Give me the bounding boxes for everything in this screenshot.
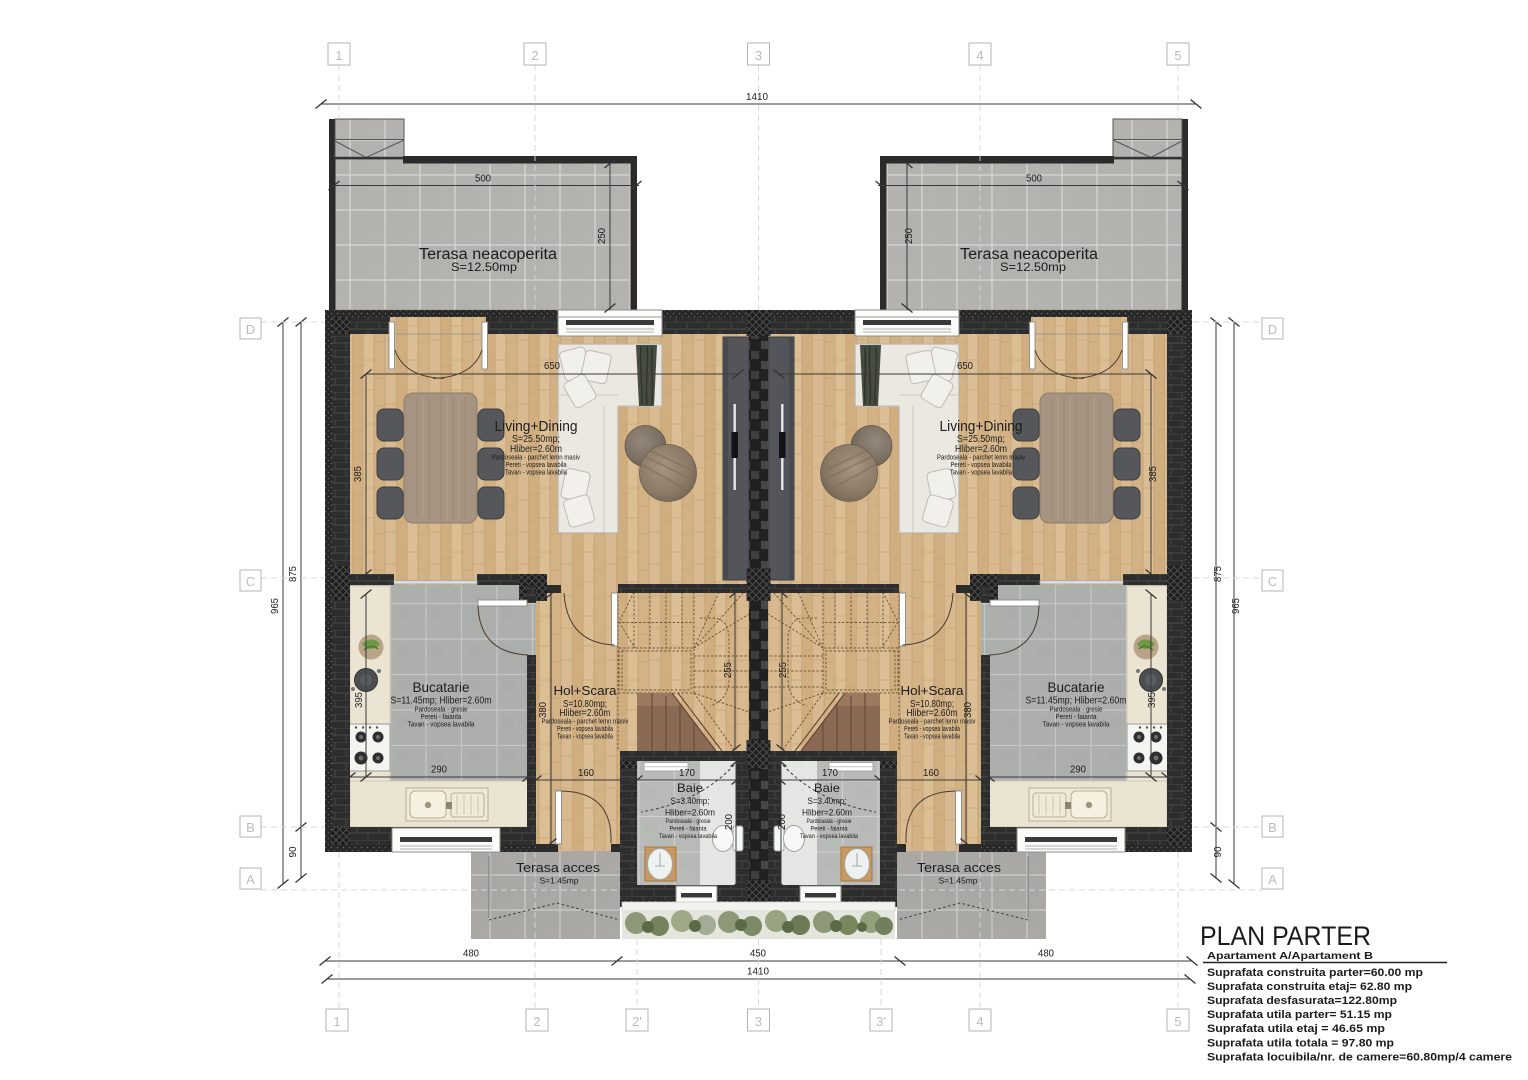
svg-text:Pardoseala - gresie: Pardoseala - gresie [415, 707, 468, 714]
svg-text:C: C [1268, 574, 1277, 589]
svg-text:S=1.45mp: S=1.45mp [540, 876, 579, 886]
svg-text:Apartament A/Apartament B: Apartament A/Apartament B [1207, 950, 1373, 962]
svg-text:3': 3' [876, 1014, 886, 1029]
svg-text:Pardoseala - parchet lemn masi: Pardoseala - parchet lemn masiv [889, 719, 976, 726]
svg-text:2': 2' [632, 1014, 642, 1029]
svg-text:395: 395 [1146, 692, 1158, 708]
svg-text:Suprafata desfasurata=122.80mp: Suprafata desfasurata=122.80mp [1207, 995, 1397, 1007]
svg-text:Suprafata utila totala = 97.80: Suprafata utila totala = 97.80 mp [1207, 1038, 1394, 1050]
svg-text:875: 875 [1212, 566, 1224, 582]
svg-text:4: 4 [976, 1014, 983, 1029]
svg-text:Suprafata utila parter= 51.15: Suprafata utila parter= 51.15 mp [1207, 1009, 1392, 1021]
svg-text:395: 395 [353, 692, 365, 708]
svg-text:Baie: Baie [814, 781, 840, 795]
svg-text:Suprafata locuibila/nr. de cam: Suprafata locuibila/nr. de camere=60.80m… [1207, 1052, 1512, 1064]
svg-text:Pardoseala - gresie: Pardoseala - gresie [807, 818, 852, 825]
svg-text:650: 650 [957, 360, 973, 372]
svg-text:290: 290 [431, 764, 447, 776]
svg-text:160: 160 [578, 767, 594, 779]
svg-text:Suprafata utila etaj = 46.65: Suprafata utila etaj = 46.65 mp [1207, 1023, 1385, 1035]
svg-text:385: 385 [352, 466, 364, 482]
svg-text:S=1.45mp: S=1.45mp [939, 876, 978, 886]
svg-text:650: 650 [544, 360, 560, 372]
svg-text:Pardoseala - parchet lemn masi: Pardoseala - parchet lemn masiv [542, 719, 629, 726]
svg-text:Tavan - vopsea lavabila: Tavan - vopsea lavabila [950, 470, 1012, 477]
svg-text:D: D [246, 322, 255, 337]
svg-text:S=3.40mp;: S=3.40mp; [808, 796, 847, 807]
svg-text:Suprafata construita parter=60: Suprafata construita parter=60.00 mp [1207, 967, 1423, 979]
svg-text:S=3.40mp;: S=3.40mp; [671, 796, 710, 807]
svg-text:S=12.50mp: S=12.50mp [1000, 260, 1066, 274]
svg-text:Pereti - faianta: Pereti - faianta [1056, 714, 1097, 721]
svg-text:3: 3 [755, 48, 762, 63]
svg-text:A: A [246, 872, 255, 887]
svg-text:C: C [246, 574, 255, 589]
svg-text:Terasa acces: Terasa acces [917, 861, 1001, 875]
svg-text:4: 4 [976, 48, 983, 63]
svg-text:Pereti - vopsea lavabila: Pereti - vopsea lavabila [557, 726, 613, 733]
svg-text:A: A [1268, 872, 1277, 887]
svg-text:1410: 1410 [746, 91, 768, 103]
svg-text:D: D [1268, 322, 1277, 337]
svg-text:290: 290 [1070, 764, 1086, 776]
svg-text:170: 170 [679, 767, 695, 779]
svg-text:Tavan - vopsea lavabila: Tavan - vopsea lavabila [800, 833, 858, 840]
svg-text:160: 160 [923, 767, 939, 779]
svg-text:965: 965 [269, 598, 281, 614]
svg-text:Hliber=2.60m: Hliber=2.60m [955, 444, 1007, 455]
svg-text:Pardoseala - parchet lemn masi: Pardoseala - parchet lemn masiv [937, 455, 1025, 462]
svg-text:1410: 1410 [747, 966, 769, 978]
svg-text:2: 2 [531, 48, 538, 63]
svg-text:255: 255 [777, 662, 789, 678]
svg-text:Living+Dining: Living+Dining [495, 418, 578, 435]
svg-text:380: 380 [962, 702, 974, 718]
svg-text:450: 450 [750, 948, 766, 960]
svg-text:480: 480 [463, 948, 479, 960]
svg-text:Living+Dining: Living+Dining [940, 418, 1023, 435]
svg-text:875: 875 [287, 566, 299, 582]
svg-text:3: 3 [755, 1014, 762, 1029]
svg-text:500: 500 [1026, 173, 1042, 185]
svg-text:Tavan - vopsea lavabila: Tavan - vopsea lavabila [408, 722, 475, 729]
svg-text:Pereti - vopsea lavabila: Pereti - vopsea lavabila [904, 726, 960, 733]
svg-text:Hliber=2.60m: Hliber=2.60m [907, 708, 958, 719]
svg-text:Pereti - faianta: Pereti - faianta [421, 714, 462, 721]
svg-text:Pereti - faianta: Pereti - faianta [811, 826, 848, 833]
svg-text:2: 2 [533, 1014, 540, 1029]
svg-text:250: 250 [596, 228, 608, 244]
svg-text:1: 1 [335, 48, 342, 63]
svg-text:965: 965 [1230, 598, 1242, 614]
svg-text:90: 90 [287, 846, 299, 857]
svg-text:5: 5 [1174, 1014, 1181, 1029]
svg-text:Pereti - vopsea lavabila: Pereti - vopsea lavabila [506, 462, 567, 469]
svg-text:90: 90 [1212, 846, 1224, 857]
svg-text:385: 385 [1147, 466, 1159, 482]
svg-text:S=11.45mp; Hliber=2.60m: S=11.45mp; Hliber=2.60m [391, 696, 492, 707]
svg-text:Pardoseala - gresie: Pardoseala - gresie [666, 818, 711, 825]
svg-text:PLAN PARTER: PLAN PARTER [1200, 921, 1371, 951]
svg-text:Tavan - vopsea lavabila: Tavan - vopsea lavabila [1043, 722, 1110, 729]
svg-text:Hliber=2.60m: Hliber=2.60m [560, 708, 611, 719]
svg-text:200: 200 [776, 814, 788, 830]
svg-text:Bucatarie: Bucatarie [1048, 679, 1105, 695]
svg-text:1: 1 [333, 1014, 340, 1029]
svg-text:Pardoseala - parchet lemn masi: Pardoseala - parchet lemn masiv [492, 455, 580, 462]
svg-text:Hliber=2.60m: Hliber=2.60m [665, 808, 715, 819]
svg-text:Hliber=2.60m: Hliber=2.60m [510, 444, 562, 455]
svg-text:5: 5 [1174, 48, 1181, 63]
svg-text:Tavan - vopsea lavabila: Tavan - vopsea lavabila [904, 734, 960, 741]
svg-text:500: 500 [475, 173, 491, 185]
svg-text:B: B [1268, 820, 1277, 835]
svg-text:Hliber=2.60m: Hliber=2.60m [802, 808, 852, 819]
svg-text:Terasa acces: Terasa acces [516, 861, 600, 875]
svg-text:255: 255 [722, 662, 734, 678]
svg-text:480: 480 [1038, 948, 1054, 960]
svg-text:Tavan - vopsea lavabila: Tavan - vopsea lavabila [557, 734, 613, 741]
svg-text:Hol+Scara: Hol+Scara [901, 683, 965, 698]
svg-text:Pardoseala - gresie: Pardoseala - gresie [1050, 707, 1103, 714]
svg-text:B: B [246, 820, 255, 835]
svg-text:Bucatarie: Bucatarie [413, 679, 470, 695]
svg-text:Hol+Scara: Hol+Scara [554, 683, 618, 698]
svg-text:380: 380 [537, 702, 549, 718]
svg-text:170: 170 [822, 767, 838, 779]
svg-text:Baie: Baie [677, 781, 703, 795]
svg-text:S=11.45mp; Hliber=2.60m: S=11.45mp; Hliber=2.60m [1026, 696, 1127, 707]
svg-text:Suprafata construita etaj= 62.: Suprafata construita etaj= 62.80 mp [1207, 981, 1412, 993]
svg-text:Pereti - faianta: Pereti - faianta [670, 826, 707, 833]
svg-text:200: 200 [723, 814, 735, 830]
svg-text:Tavan - vopsea lavabila: Tavan - vopsea lavabila [659, 833, 717, 840]
svg-text:Tavan - vopsea lavabila: Tavan - vopsea lavabila [505, 470, 567, 477]
svg-text:Pereti - vopsea lavabila: Pereti - vopsea lavabila [951, 462, 1012, 469]
svg-text:250: 250 [903, 228, 915, 244]
svg-text:S=12.50mp: S=12.50mp [451, 260, 517, 274]
